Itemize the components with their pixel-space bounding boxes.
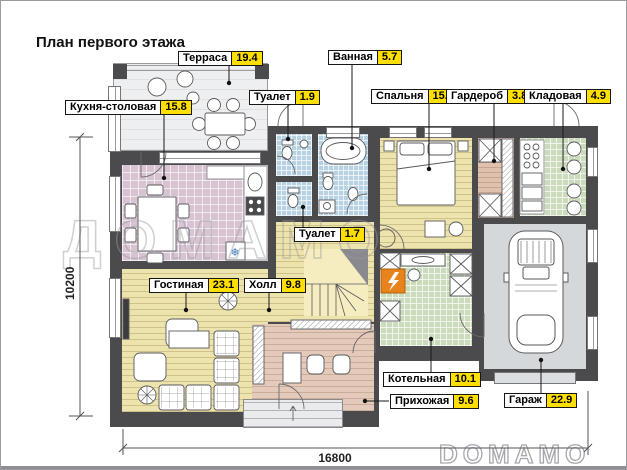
room-area: 22.9	[547, 393, 577, 408]
room-label-wardrobe: Гардероб3.8	[446, 89, 532, 104]
room-name: Холл	[244, 278, 282, 293]
room-label-boiler: Котельная10.1	[383, 372, 481, 387]
room-area: 10.1	[451, 372, 481, 387]
room-label-living: Гостиная23.1	[149, 278, 239, 293]
room-area: 15.8	[161, 100, 191, 115]
room-label-toilet-19: Туалет1.9	[249, 90, 320, 105]
room-label-kitchen: Кухня-столовая15.8	[65, 100, 192, 115]
dimension-height-label: 10200	[63, 266, 77, 300]
room-label-terrace: Терраса19.4	[178, 51, 263, 66]
room-area: 23.1	[209, 278, 239, 293]
room-label-entrance-hall: Прихожая9.6	[390, 394, 479, 409]
room-label-storage: Кладовая4.9	[524, 89, 611, 104]
room-name: Кладовая	[524, 89, 587, 104]
room-name: Гардероб	[446, 89, 508, 104]
room-label-toilet-17: Туалет1.7	[294, 227, 365, 242]
room-name: Гостиная	[149, 278, 209, 293]
room-label-garage: Гараж22.9	[504, 393, 577, 408]
room-area: 1.7	[341, 227, 365, 242]
room-area: 19.4	[232, 51, 262, 66]
page-title: План первого этажа	[36, 34, 185, 51]
room-name: Прихожая	[390, 394, 454, 409]
room-area: 5.7	[378, 50, 402, 65]
dimension-width-label: 16800	[318, 451, 352, 465]
room-name: Гараж	[504, 393, 547, 408]
room-name: Туалет	[249, 90, 296, 105]
room-name: Кухня-столовая	[65, 100, 161, 115]
image-bottom-border	[1, 466, 626, 469]
room-area: 4.9	[587, 89, 611, 104]
room-label-hall: Холл9.8	[244, 278, 306, 293]
room-area: 9.8	[282, 278, 306, 293]
room-name: Терраса	[178, 51, 232, 66]
room-area: 1.9	[296, 90, 320, 105]
room-area: 9.6	[454, 394, 478, 409]
room-label-bathroom: Ванная5.7	[328, 50, 402, 65]
room-name: Спальня	[371, 89, 429, 104]
floor-plan-canvas: План первого этажа	[0, 0, 627, 470]
room-name: Котельная	[383, 372, 451, 387]
room-name: Ванная	[328, 50, 378, 65]
room-name: Туалет	[294, 227, 341, 242]
